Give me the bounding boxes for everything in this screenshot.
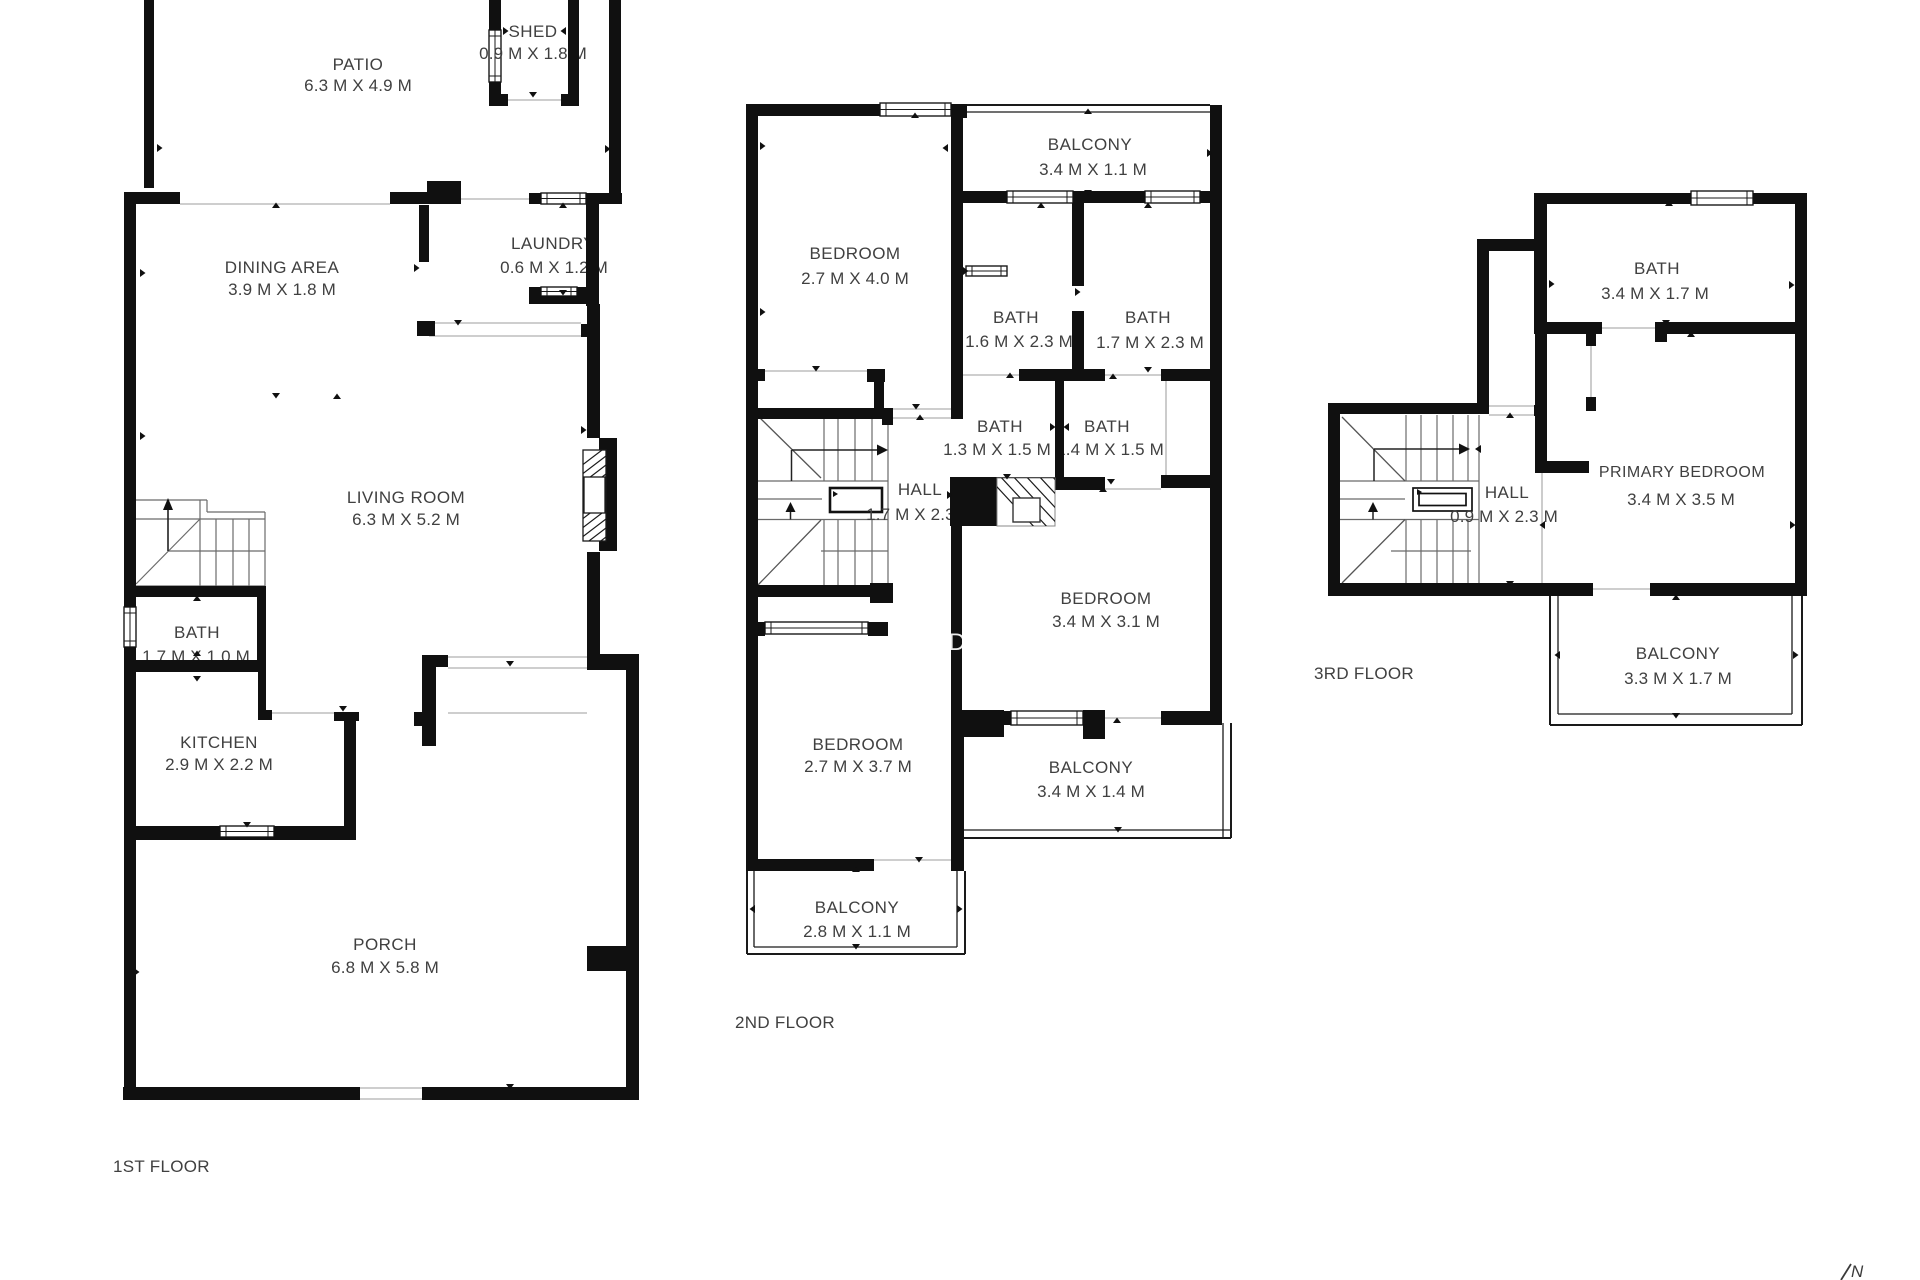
svg-text:BATH: BATH — [1634, 259, 1680, 278]
svg-text:6.8 M X 5.8 M: 6.8 M X 5.8 M — [331, 958, 439, 977]
svg-text:BATH: BATH — [1084, 417, 1130, 436]
svg-text:0.9 M X 2.3 M: 0.9 M X 2.3 M — [1450, 507, 1558, 526]
svg-text:1.6 M X 2.3 M: 1.6 M X 2.3 M — [965, 332, 1073, 351]
svg-text:BEDROOM: BEDROOM — [813, 735, 904, 754]
svg-text:BEDROOM: BEDROOM — [1061, 589, 1152, 608]
svg-text:LIVING ROOM: LIVING ROOM — [347, 488, 465, 507]
svg-text:HALL: HALL — [898, 480, 942, 499]
svg-text:BATH: BATH — [993, 308, 1039, 327]
svg-text:2.9 M X 2.2 M: 2.9 M X 2.2 M — [165, 755, 273, 774]
svg-text:1.7 M X 2.3 M: 1.7 M X 2.3 M — [1096, 333, 1204, 352]
svg-text:6.3 M X 4.9 M: 6.3 M X 4.9 M — [304, 76, 412, 95]
svg-text:PORCH: PORCH — [353, 935, 417, 954]
svg-text:2.7 M X 4.0 M: 2.7 M X 4.0 M — [801, 269, 909, 288]
svg-text:BEDROOM: BEDROOM — [810, 244, 901, 263]
svg-text:3RD FLOOR: 3RD FLOOR — [1314, 664, 1414, 683]
svg-text:D: D — [948, 629, 965, 656]
svg-text:BALCONY: BALCONY — [815, 898, 899, 917]
svg-text:1ST FLOOR: 1ST FLOOR — [113, 1157, 210, 1176]
svg-text:PRIMARY BEDROOM: PRIMARY BEDROOM — [1599, 464, 1765, 481]
svg-text:KITCHEN: KITCHEN — [180, 733, 258, 752]
svg-text:3.4 M X 1.4 M: 3.4 M X 1.4 M — [1037, 782, 1145, 801]
svg-text:N: N — [1851, 1262, 1864, 1280]
svg-text:1.3 M X 1.5 M: 1.3 M X 1.5 M — [943, 440, 1051, 459]
svg-text:BATH: BATH — [174, 623, 220, 642]
svg-text:HALL: HALL — [1485, 483, 1529, 502]
svg-text:BATH: BATH — [977, 417, 1023, 436]
svg-text:2.8 M X 1.1 M: 2.8 M X 1.1 M — [803, 922, 911, 941]
svg-text:LAUNDRY: LAUNDRY — [511, 234, 595, 253]
svg-text:DINING AREA: DINING AREA — [225, 258, 340, 277]
svg-text:BALCONY: BALCONY — [1636, 644, 1720, 663]
svg-text:1.4 M X 1.5 M: 1.4 M X 1.5 M — [1056, 440, 1164, 459]
svg-text:BATH: BATH — [1125, 308, 1171, 327]
svg-text:3.4 M X 1.1 M: 3.4 M X 1.1 M — [1039, 160, 1147, 179]
svg-text:3.4 M X 3.1 M: 3.4 M X 3.1 M — [1052, 612, 1160, 631]
svg-text:3.9 M X 1.8 M: 3.9 M X 1.8 M — [228, 280, 336, 299]
svg-text:BALCONY: BALCONY — [1049, 758, 1133, 777]
svg-text:6.3 M X 5.2 M: 6.3 M X 5.2 M — [352, 510, 460, 529]
svg-text:PATIO: PATIO — [333, 55, 384, 74]
svg-text:2.7 M X 3.7 M: 2.7 M X 3.7 M — [804, 757, 912, 776]
svg-text:BALCONY: BALCONY — [1048, 135, 1132, 154]
svg-text:SHED: SHED — [508, 22, 557, 41]
svg-text:2ND FLOOR: 2ND FLOOR — [735, 1013, 835, 1032]
svg-text:3.4 M X 3.5 M: 3.4 M X 3.5 M — [1627, 490, 1735, 509]
svg-text:3.3 M X 1.7 M: 3.3 M X 1.7 M — [1624, 669, 1732, 688]
svg-text:3.4 M X 1.7 M: 3.4 M X 1.7 M — [1601, 284, 1709, 303]
